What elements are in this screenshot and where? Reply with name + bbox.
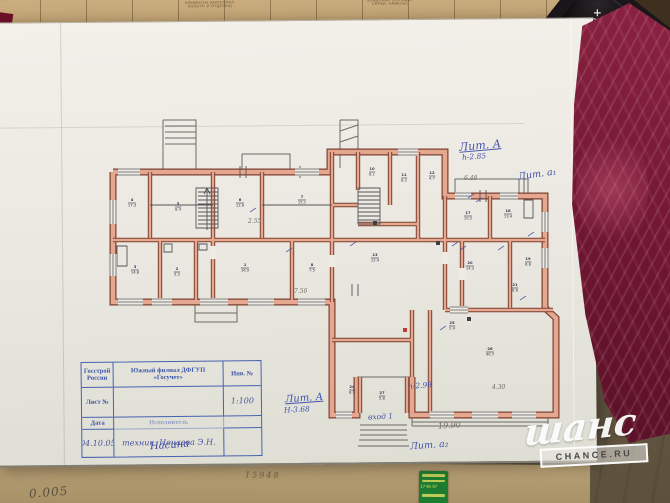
room-label: 248.9 [349,385,355,394]
hall-height-label: h-2.98 [408,380,433,391]
room-label: 715.1 [298,195,306,204]
dimension-19-90: 19.90 [438,420,461,430]
watermark: шанс CHANCE.RU [524,406,670,476]
room-label: 106.1 [369,167,375,176]
lit-a-bottom-height: Н-3.68 [284,404,310,414]
entrance-label: вход 1 [368,411,393,421]
empty-cell [114,386,224,417]
room-label: 1710.2 [464,211,472,220]
bag-highlight [576,124,648,254]
lit-a1-label: Лит. а₁ [517,166,557,182]
room-label: 118.2 [401,173,407,182]
dim-2-55: 2.55 [248,218,261,225]
lit-a2-label: Лит. а₂ [410,439,449,453]
empty-cell [224,428,261,455]
photo-of-bti-floor-plan: ЭЛЕМЕНТЫ (МАТЕРИАЛ,КОНСТР. И ОТДЕЛКА) КЛ… [0,0,670,503]
date-label-cell: Дата [82,418,114,430]
room-label: 275.8 [379,391,385,400]
dim-7-56: 7.56 [294,288,307,295]
scale-cell: 1:100 [224,386,261,416]
watermark-script: шанс [523,398,670,452]
room-label: 417.3 [128,198,136,207]
lit-a-height: h-2.85 [462,151,487,162]
room-label: 219.6 [512,283,518,292]
lit-a-bottom-label: Лит. А [285,392,324,406]
date-value-cell: 04.10.05 [82,430,114,457]
executor-label-cell: Исполнитель [114,416,224,429]
room-label: 2014.3 [466,261,474,270]
dim-4-30: 4.30 [492,384,505,391]
room-label: 1813.4 [504,209,512,218]
room-label: 314.8 [131,265,139,274]
room-label: 612.6 [236,198,244,207]
empty-cell [224,416,261,428]
org-cell: ГосстройРоссии [82,363,114,388]
inventory-number-cell: Инв. № [224,361,261,386]
room-label: 58.4 [175,202,181,211]
room-label: 196.8 [525,257,531,266]
room-label: 252.4 [449,321,455,330]
dim-6-48: 6.48 [464,175,477,182]
room-label: 25.2 [174,267,180,276]
room-label: 116.9 [241,263,249,272]
room-label: 2640.7 [486,347,494,356]
room-label: 124.7 [429,171,435,180]
room-label: 1312.4 [371,253,379,262]
branch-cell: Южный филиал ДФГУП«Госучет» [114,361,224,387]
room-label: 87.5 [309,263,315,272]
sheet-number-cell: Лист № [82,388,114,418]
